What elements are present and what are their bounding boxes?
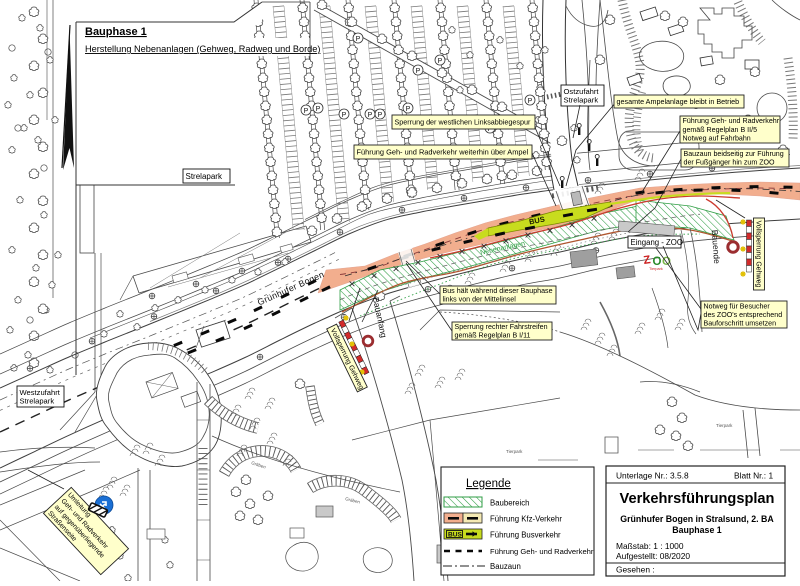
svg-text:des ZOO's entsprechend: des ZOO's entsprechend xyxy=(704,311,783,319)
svg-text:Grünhufer Bogen in Stralsund,: Grünhufer Bogen in Stralsund, 2. BA xyxy=(620,514,774,524)
svg-text:Bauzaun: Bauzaun xyxy=(490,562,521,571)
svg-text:Führung Busverkehr: Führung Busverkehr xyxy=(490,531,561,540)
svg-text:Legende: Legende xyxy=(466,478,511,490)
svg-text:Blatt Nr.: 1: Blatt Nr.: 1 xyxy=(734,471,773,481)
svg-text:Führung Geh- und Radverkehr: Führung Geh- und Radverkehr xyxy=(683,117,780,125)
svg-text:Sperrung rechter Fahrstreifen: Sperrung rechter Fahrstreifen xyxy=(455,323,548,331)
svg-text:Strelapark: Strelapark xyxy=(186,172,223,181)
svg-text:Bauzaun beidseitig zur Führung: Bauzaun beidseitig zur Führung xyxy=(684,150,784,158)
svg-text:Strelapark: Strelapark xyxy=(564,96,599,105)
svg-text:Sperrung der westlichen Linksa: Sperrung der westlichen Linksabbiegespur xyxy=(395,117,531,126)
svg-text:Maßstab: 1 : 1000: Maßstab: 1 : 1000 xyxy=(616,541,684,551)
svg-text:gesamte Ampelanlage bleibt in: gesamte Ampelanlage bleibt in Betrieb xyxy=(617,97,740,106)
svg-text:Tierpark: Tierpark xyxy=(716,423,733,428)
svg-text:Führung Geh- und Radverkehr: Führung Geh- und Radverkehr xyxy=(490,547,594,556)
svg-text:Bauphase 1: Bauphase 1 xyxy=(85,26,147,38)
svg-text:Bauphase 1: Bauphase 1 xyxy=(672,525,721,535)
svg-text:Tierpark: Tierpark xyxy=(649,267,663,271)
svg-text:BUS: BUS xyxy=(448,532,463,539)
svg-text:Führung Geh- und Radverkehr we: Führung Geh- und Radverkehr weiterhin üb… xyxy=(357,148,529,157)
svg-text:Bauforschritt umsetzen: Bauforschritt umsetzen xyxy=(704,320,777,328)
svg-text:Notweg auf Fahrbahn: Notweg auf Fahrbahn xyxy=(683,134,751,142)
svg-text:links von der Mittelinsel: links von der Mittelinsel xyxy=(443,296,517,304)
svg-text:gemäß Regelplan B I/11: gemäß Regelplan B I/11 xyxy=(455,332,531,340)
svg-text:Herstellung Nebenanlagen (Gehw: Herstellung Nebenanlagen (Gehweg, Radweg… xyxy=(85,44,320,54)
svg-text:Strelapark: Strelapark xyxy=(20,397,55,406)
svg-text:Vollsperrung Gehweg: Vollsperrung Gehweg xyxy=(755,221,762,288)
svg-text:Eingang - ZOO: Eingang - ZOO xyxy=(631,238,683,247)
svg-text:der Fußgänger hin zum ZOO: der Fußgänger hin zum ZOO xyxy=(684,159,776,167)
svg-text:Gesehen :: Gesehen : xyxy=(616,565,655,575)
svg-text:Verkehrsführungsplan: Verkehrsführungsplan xyxy=(620,491,775,507)
svg-text:gemäß Regelplan B II/5: gemäß Regelplan B II/5 xyxy=(683,126,758,134)
svg-text:Tierpark: Tierpark xyxy=(506,449,523,454)
svg-text:Bus hält während dieser Baupha: Bus hält während dieser Bauphase xyxy=(443,287,553,295)
svg-text:Aufgestellt: 08/2020: Aufgestellt: 08/2020 xyxy=(616,551,690,561)
svg-text:Unterlage Nr.: 3.5.8: Unterlage Nr.: 3.5.8 xyxy=(616,471,689,481)
svg-text:Baubereich: Baubereich xyxy=(490,499,529,508)
svg-text:Notweg für Besucher: Notweg für Besucher xyxy=(704,302,771,310)
svg-text:Führung Kfz-Verkehr: Führung Kfz-Verkehr xyxy=(490,515,562,524)
